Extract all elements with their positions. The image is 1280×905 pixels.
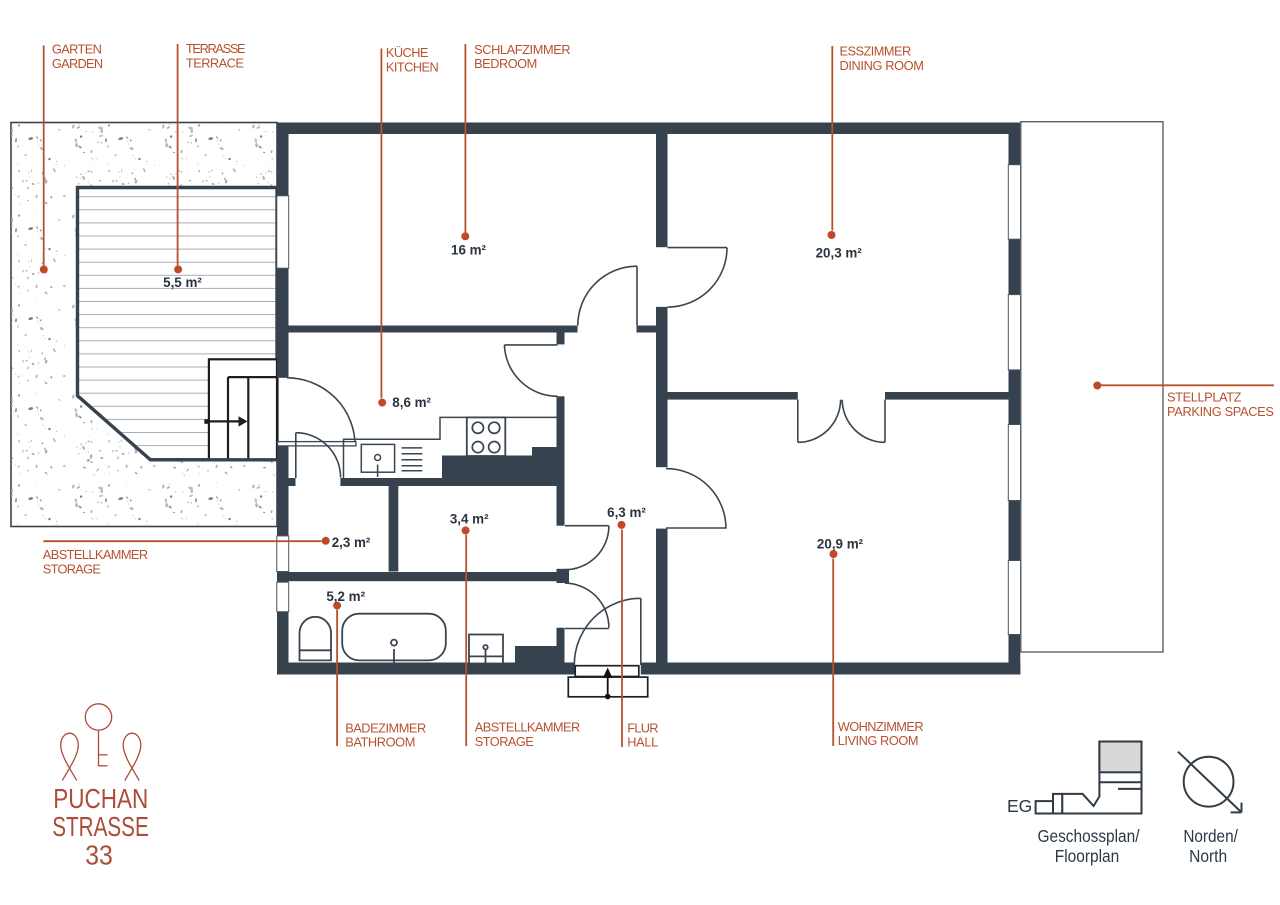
svg-text:6,3 m²: 6,3 m² — [607, 505, 646, 520]
svg-text:TERRASSE: TERRASSE — [186, 41, 246, 56]
svg-text:North: North — [1189, 846, 1227, 866]
svg-text:BEDROOM: BEDROOM — [474, 56, 537, 71]
svg-text:ABSTELLKAMMER: ABSTELLKAMMER — [43, 547, 148, 562]
svg-text:KÜCHE: KÜCHE — [386, 45, 429, 60]
svg-text:33: 33 — [85, 840, 113, 871]
svg-text:WOHNZIMMER: WOHNZIMMER — [838, 719, 924, 734]
svg-text:FLUR: FLUR — [627, 721, 658, 736]
svg-text:2,3 m²: 2,3 m² — [332, 535, 371, 550]
svg-text:PARKING SPACES: PARKING SPACES — [1167, 404, 1274, 419]
svg-text:EG: EG — [1007, 796, 1032, 816]
svg-text:STORAGE: STORAGE — [475, 734, 534, 749]
svg-text:TERRACE: TERRACE — [186, 55, 244, 70]
svg-text:5,2 m²: 5,2 m² — [326, 589, 365, 604]
svg-text:Geschossplan/: Geschossplan/ — [1038, 826, 1140, 846]
svg-text:BATHROOM: BATHROOM — [345, 734, 415, 749]
svg-text:8,6 m²: 8,6 m² — [392, 395, 431, 410]
svg-text:STELLPLATZ: STELLPLATZ — [1167, 390, 1242, 405]
svg-text:Norden/: Norden/ — [1183, 826, 1238, 846]
svg-text:20,9 m²: 20,9 m² — [817, 537, 864, 552]
svg-text:Floorplan: Floorplan — [1055, 846, 1120, 866]
svg-text:ESSZIMMER: ESSZIMMER — [840, 43, 912, 58]
svg-text:GARDEN: GARDEN — [52, 56, 103, 71]
svg-text:20,3 m²: 20,3 m² — [816, 246, 863, 261]
svg-text:16 m²: 16 m² — [451, 243, 487, 258]
svg-text:BADEZIMMER: BADEZIMMER — [345, 720, 426, 735]
svg-text:STRASSE: STRASSE — [52, 811, 149, 842]
svg-text:5,5 m²: 5,5 m² — [163, 275, 202, 290]
svg-text:ABSTELLKAMMER: ABSTELLKAMMER — [475, 719, 580, 734]
svg-text:LIVING ROOM: LIVING ROOM — [838, 733, 919, 748]
svg-text:HALL: HALL — [627, 735, 658, 750]
svg-text:GARTEN: GARTEN — [52, 41, 102, 56]
svg-text:3,4 m²: 3,4 m² — [450, 512, 489, 527]
svg-text:PUCHAN: PUCHAN — [53, 783, 148, 814]
svg-text:KITCHEN: KITCHEN — [386, 59, 439, 74]
svg-text:STORAGE: STORAGE — [43, 561, 101, 576]
svg-text:SCHLAFZIMMER: SCHLAFZIMMER — [474, 42, 570, 57]
svg-text:DINING ROOM: DINING ROOM — [840, 58, 924, 73]
